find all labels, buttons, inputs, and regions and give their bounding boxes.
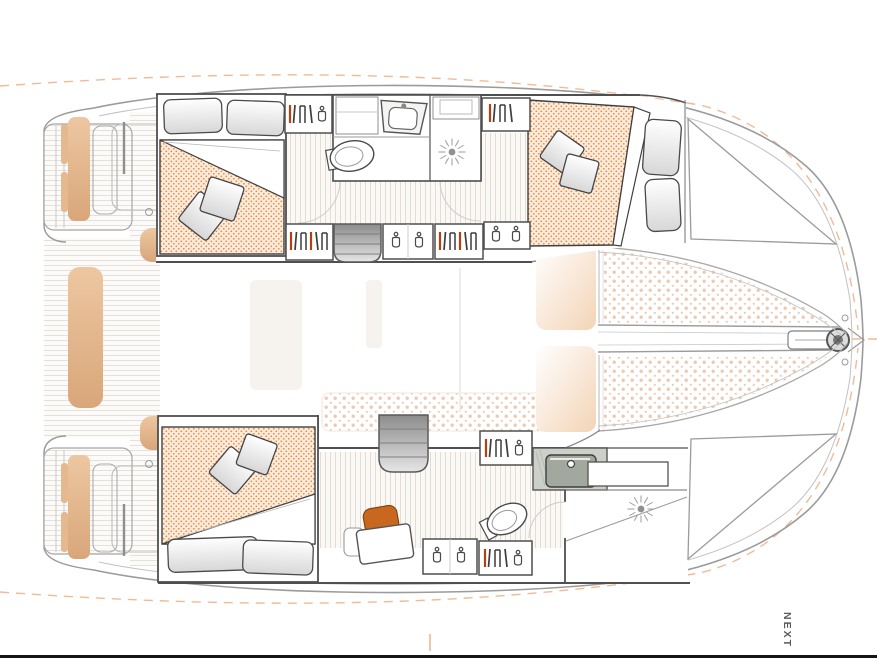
desk xyxy=(356,523,414,564)
port-hull-interior xyxy=(158,415,836,583)
trampoline-starboard xyxy=(604,251,839,331)
cabin-bed-aft-starboard xyxy=(157,94,286,256)
starboard-hull-interior xyxy=(156,94,836,262)
companionway-steps xyxy=(334,224,381,262)
cockpit-bench-starboard xyxy=(68,117,90,221)
bathroom-starboard xyxy=(325,95,481,181)
wardrobe xyxy=(286,224,333,260)
bow-locker-port xyxy=(688,434,836,559)
trampoline-port xyxy=(604,347,839,427)
pillow xyxy=(642,119,682,176)
next-button[interactable]: NEXT xyxy=(781,612,793,648)
bow-stem-fitting xyxy=(848,328,864,352)
pillow xyxy=(242,540,313,575)
cabin-bed-aft-port xyxy=(158,416,318,582)
wardrobe xyxy=(480,431,532,465)
faucet-icon xyxy=(568,461,575,468)
cockpit-aft-sunpad xyxy=(68,267,103,408)
foredeck-seat-port xyxy=(536,346,596,432)
sink-icon xyxy=(379,100,427,134)
page-bottom-rule xyxy=(0,655,877,658)
bow-locker-starboard xyxy=(688,119,836,244)
pillow xyxy=(226,100,284,136)
vanity-cabinet xyxy=(336,97,378,134)
cockpit-bench-port xyxy=(68,455,90,559)
shower-seat xyxy=(588,462,668,486)
cabin-bed-forward-starboard xyxy=(528,100,682,246)
pillow xyxy=(163,98,222,134)
catamaran-floorplan-page: NEXT xyxy=(0,0,877,661)
catamaran-layout-drawing xyxy=(0,0,877,661)
hanging-locker xyxy=(484,222,530,249)
pillow xyxy=(645,178,682,232)
